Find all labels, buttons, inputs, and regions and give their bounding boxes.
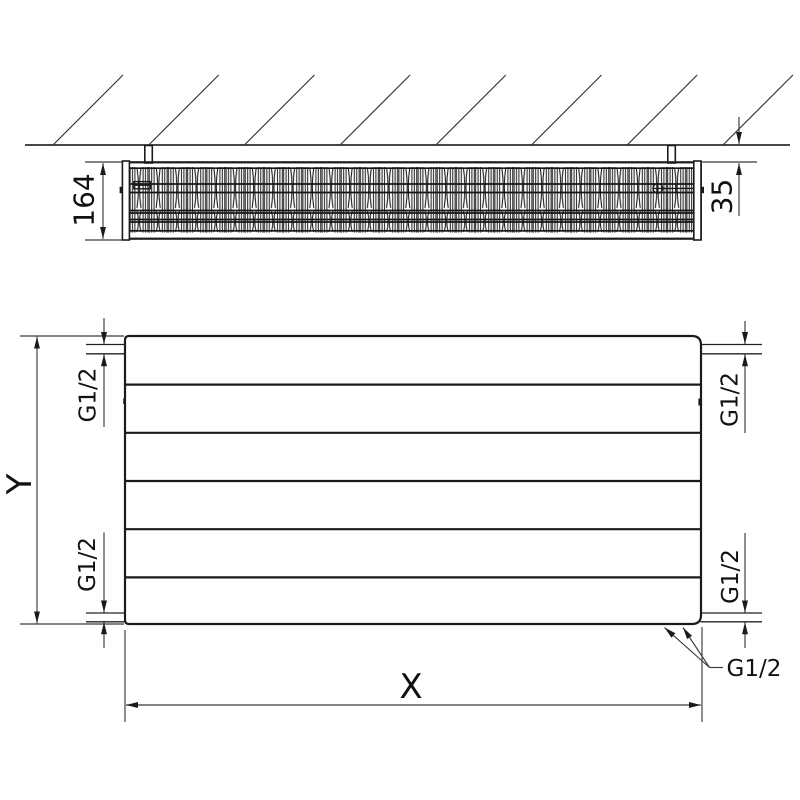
dimension-connection-bottom-right: G1/2: [718, 533, 745, 648]
wall-bracket-left: [145, 146, 153, 164]
depth-dimension-label: 164: [68, 173, 101, 226]
length-dimension-label: X: [399, 667, 422, 707]
side-tapping-left: [120, 187, 123, 193]
side-connection-right: [698, 399, 701, 406]
wall-bracket-right: [668, 146, 676, 164]
bottom-connections-leader: G1/2: [665, 628, 782, 683]
dimension-connection-bottom-left: G1/2: [75, 533, 104, 649]
dimension-length: X: [125, 627, 702, 722]
height-dimension-label: Y: [0, 473, 40, 495]
connection-bottom-left-label: G1/2: [75, 537, 101, 592]
end-plate-left: [122, 161, 129, 240]
side-connection-left: [123, 399, 125, 405]
radiator-section: [120, 161, 704, 240]
wall-hatching: [25, 75, 793, 145]
radiator-technical-drawing: 164 35: [0, 0, 800, 800]
drawing-canvas: 164 35: [0, 0, 800, 800]
connection-stubs: [86, 345, 762, 622]
dimension-connection-top-left: G1/2: [76, 318, 105, 427]
dimension-height: Y: [0, 336, 124, 624]
bottom-connections-leader-label: G1/2: [727, 656, 782, 682]
end-plate-right: [694, 161, 701, 240]
side-tapping-right: [701, 187, 704, 193]
connection-top-right-label: G1/2: [718, 372, 744, 427]
connection-top-left-label: G1/2: [76, 368, 102, 423]
dimension-depth: 164: [68, 162, 123, 240]
wall-clearance-dimension-label: 35: [706, 179, 739, 215]
panel-grooves: [126, 385, 701, 578]
dimension-connection-top-right: G1/2: [718, 321, 746, 433]
radiator-panel: [86, 336, 762, 624]
dimension-wall-clearance: 35: [701, 117, 758, 216]
connection-bottom-right-label: G1/2: [718, 549, 744, 604]
top-view: 164 35: [25, 75, 793, 240]
front-view: Y X G1/2 G1/2 G1/2: [0, 318, 781, 722]
